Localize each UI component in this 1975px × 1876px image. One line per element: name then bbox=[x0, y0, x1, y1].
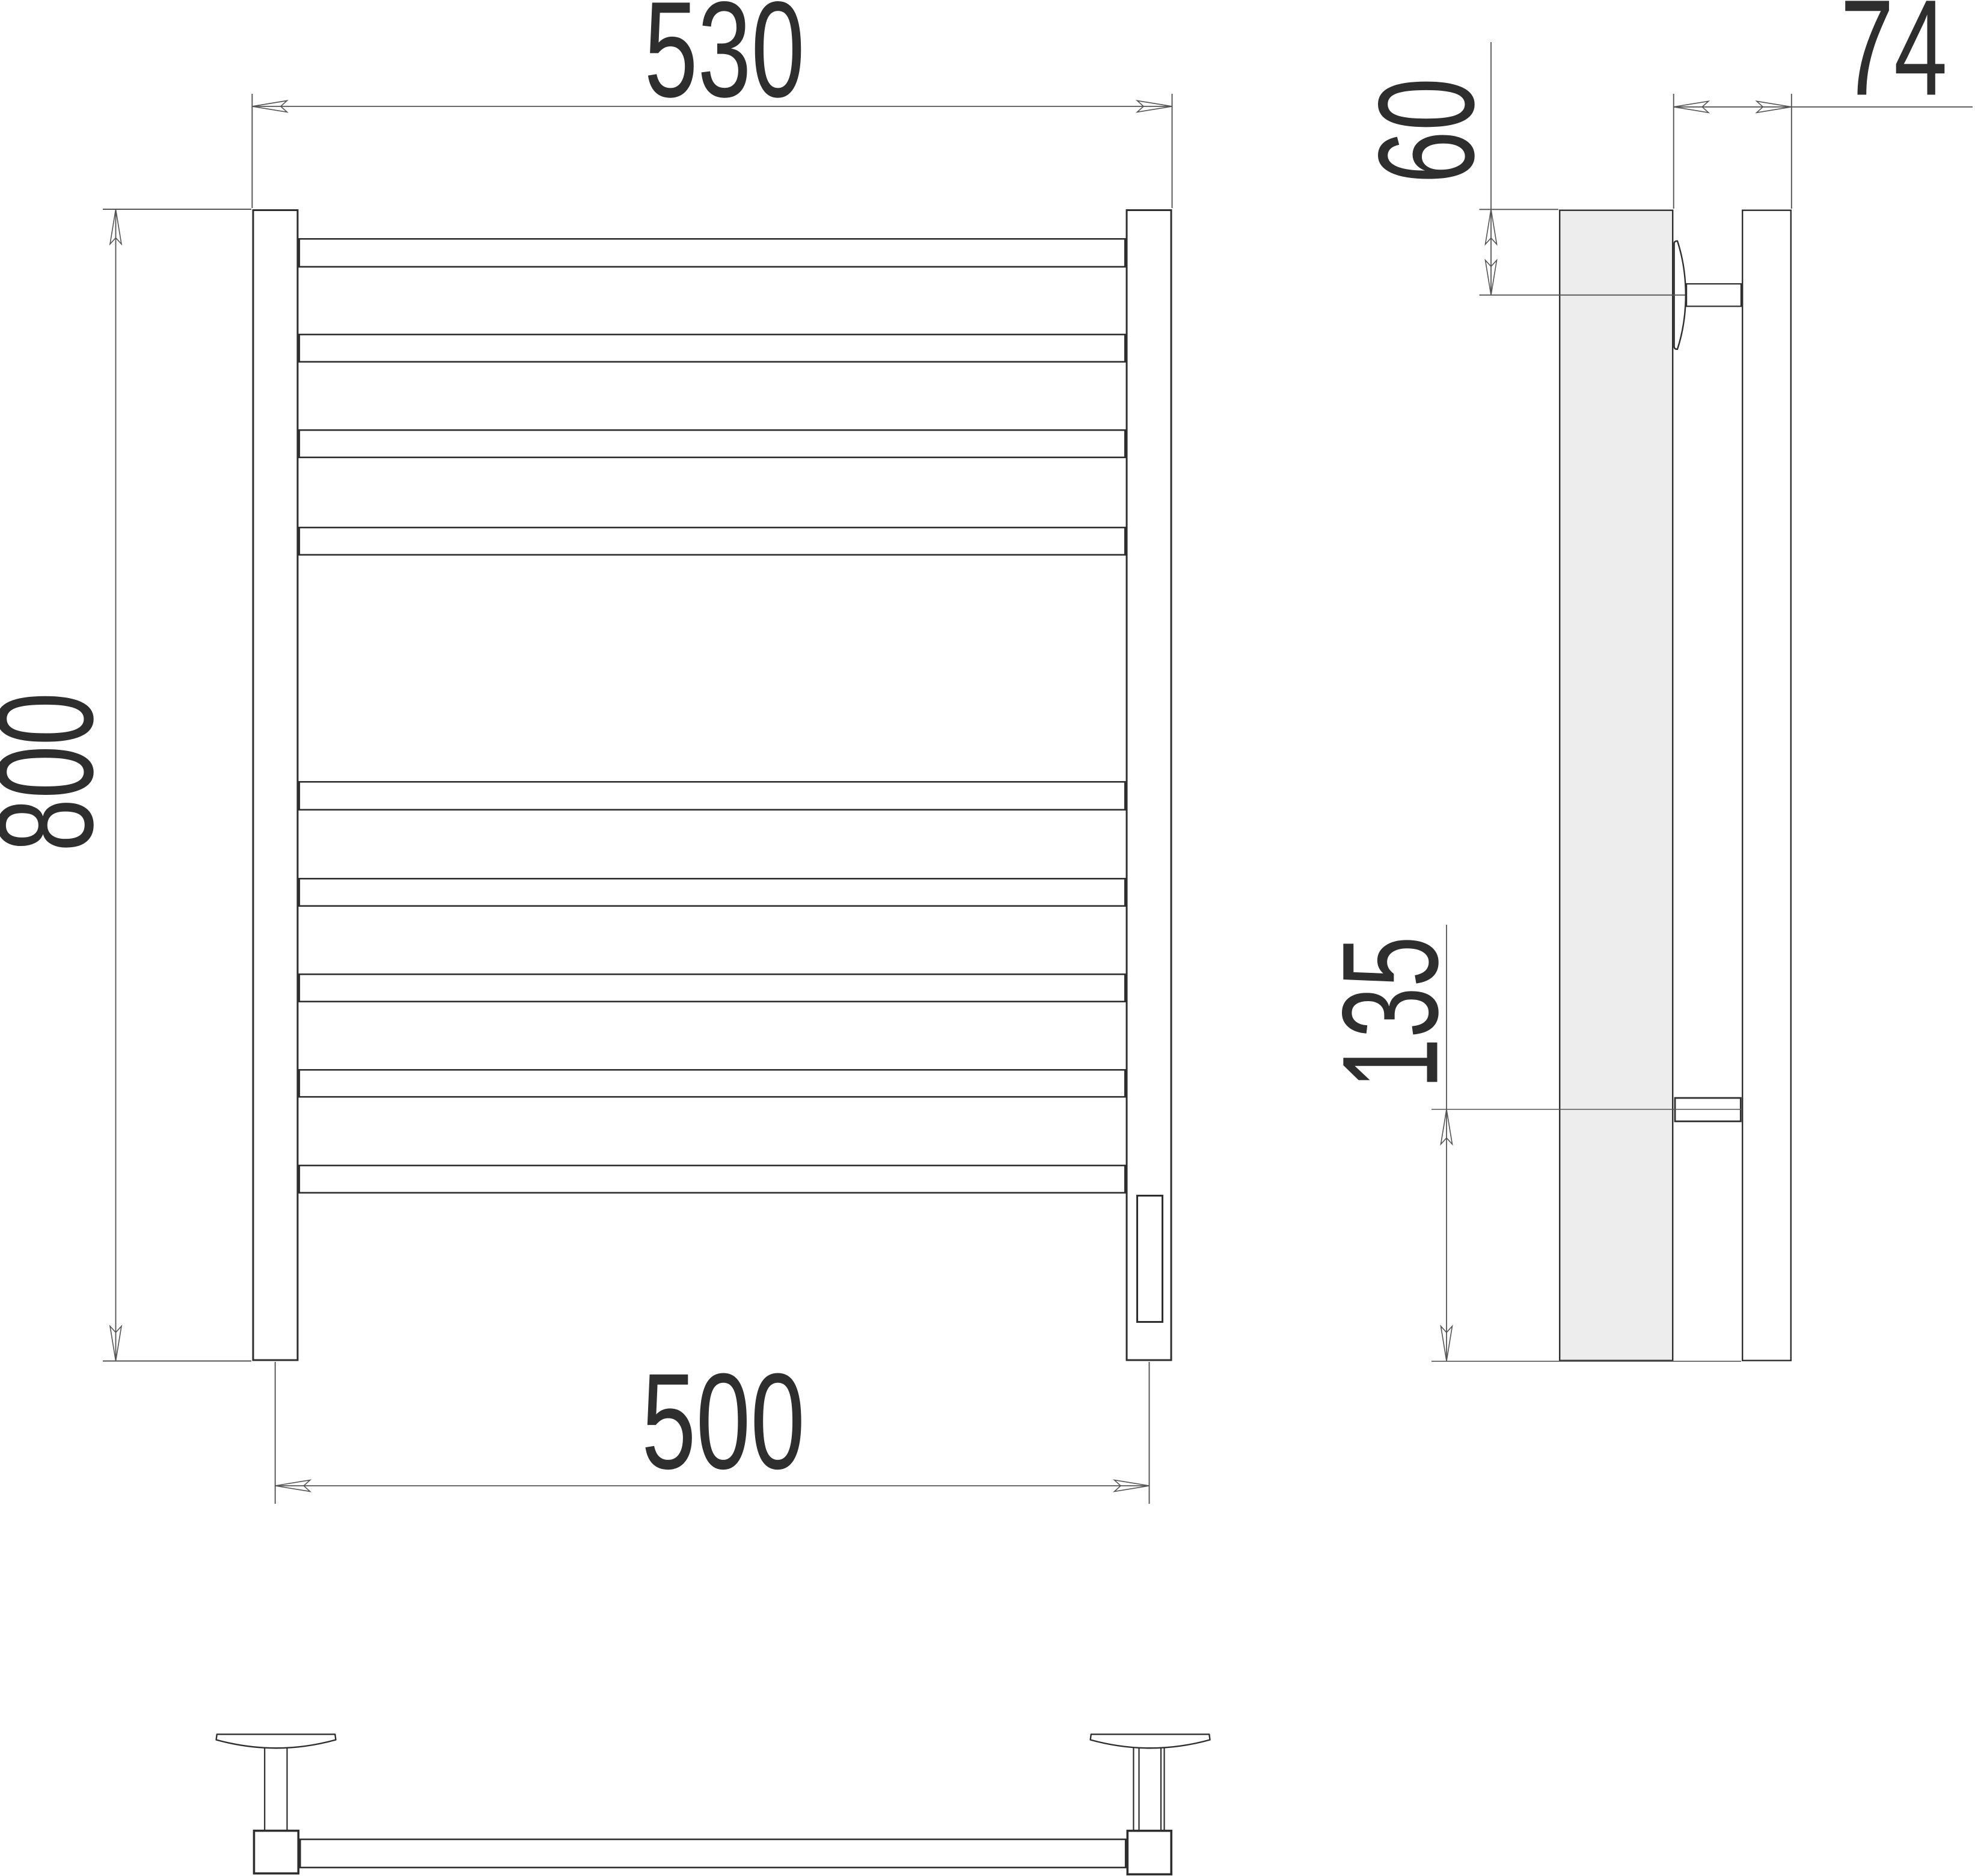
svg-text:800: 800 bbox=[0, 693, 122, 852]
svg-text:530: 530 bbox=[645, 0, 805, 126]
svg-text:135: 135 bbox=[1315, 936, 1467, 1089]
svg-text:500: 500 bbox=[641, 1346, 805, 1498]
svg-text:60: 60 bbox=[1351, 78, 1503, 184]
svg-text:74: 74 bbox=[1840, 0, 1947, 124]
